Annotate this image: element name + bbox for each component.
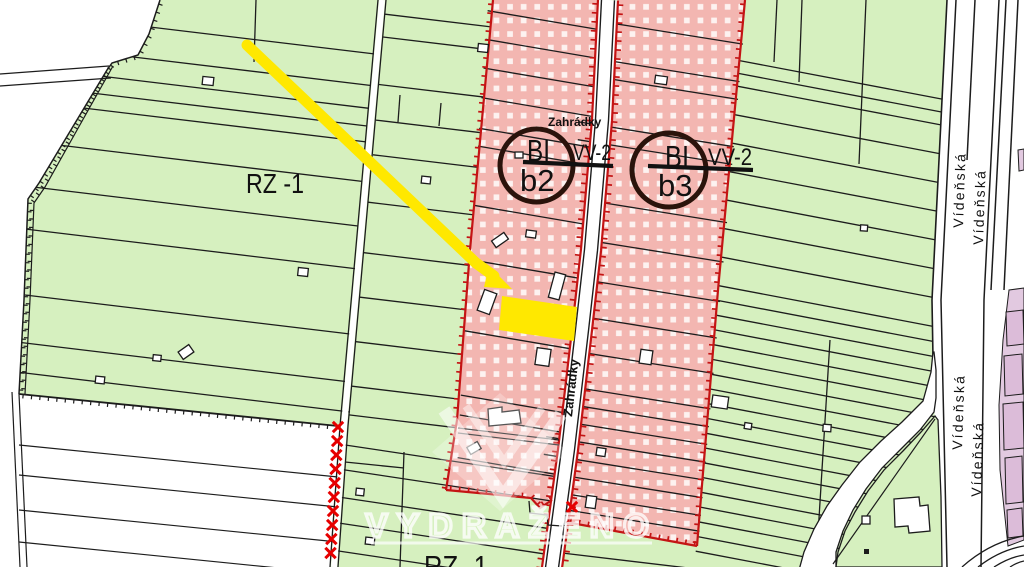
svg-text:VV-2: VV-2 — [573, 140, 611, 165]
svg-text:Vídeňská: Vídeňská — [949, 374, 968, 450]
svg-text:Vídeňská: Vídeňská — [950, 152, 969, 228]
svg-text:b3: b3 — [658, 168, 692, 203]
svg-text:VV-2: VV-2 — [708, 144, 752, 171]
svg-text:Vídeňská: Vídeňská — [970, 169, 989, 245]
svg-text:RZ -1: RZ -1 — [246, 168, 304, 199]
svg-text:RZ -1: RZ -1 — [424, 549, 488, 567]
svg-text:Zahrádky: Zahrádky — [548, 115, 602, 129]
svg-text:VYDRAŽENO: VYDRAŽENO — [366, 507, 659, 544]
svg-text:b2: b2 — [520, 163, 554, 198]
svg-text:Vídeňská: Vídeňská — [968, 421, 987, 497]
